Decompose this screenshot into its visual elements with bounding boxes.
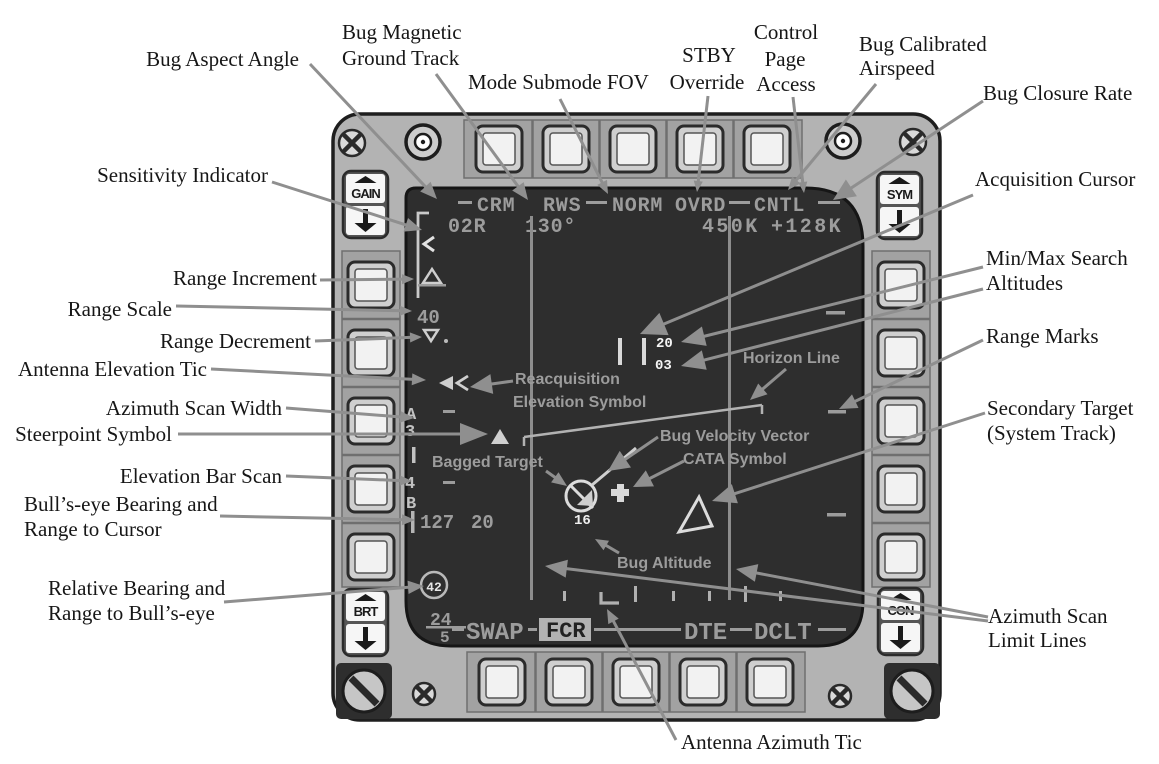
svg-text:Azimuth Scan Width: Azimuth Scan Width bbox=[106, 396, 283, 420]
svg-text:5: 5 bbox=[440, 629, 450, 647]
svg-text:STBY: STBY bbox=[682, 43, 736, 67]
svg-text:Range to Cursor: Range to Cursor bbox=[24, 517, 162, 541]
svg-text:127: 127 bbox=[420, 512, 454, 534]
svg-text:Range Decrement: Range Decrement bbox=[160, 329, 311, 353]
svg-text:Steerpoint Symbol: Steerpoint Symbol bbox=[15, 422, 172, 446]
svg-text:Access: Access bbox=[756, 72, 815, 96]
svg-text:Range to Bull’s-eye: Range to Bull’s-eye bbox=[48, 601, 215, 625]
svg-text:CATA Symbol: CATA Symbol bbox=[683, 451, 787, 468]
svg-text:OVRD: OVRD bbox=[675, 195, 726, 218]
svg-text:NORM: NORM bbox=[612, 195, 663, 218]
svg-text:GAIN: GAIN bbox=[351, 186, 380, 201]
svg-text:Reacquisition: Reacquisition bbox=[515, 371, 620, 388]
svg-text:Range Increment: Range Increment bbox=[173, 266, 317, 290]
svg-text:Control: Control bbox=[754, 20, 818, 44]
svg-text:02R: 02R bbox=[448, 216, 486, 239]
svg-text:4: 4 bbox=[405, 475, 415, 494]
svg-text:03: 03 bbox=[655, 358, 672, 374]
svg-text:Limit Lines: Limit Lines bbox=[988, 628, 1087, 652]
svg-text:DCLT: DCLT bbox=[754, 620, 812, 647]
svg-text:Bagged Target: Bagged Target bbox=[432, 454, 544, 471]
svg-text:SWAP: SWAP bbox=[466, 620, 524, 647]
svg-text:DTE: DTE bbox=[684, 620, 727, 647]
svg-text:Mode Submode FOV: Mode Submode FOV bbox=[468, 70, 649, 94]
svg-text:FCR: FCR bbox=[546, 619, 586, 644]
svg-text:Bug Altitude: Bug Altitude bbox=[617, 555, 712, 572]
svg-text:Range Scale: Range Scale bbox=[68, 297, 172, 321]
svg-text:Ground Track: Ground Track bbox=[342, 46, 460, 70]
svg-text:Bull’s-eye Bearing and: Bull’s-eye Bearing and bbox=[24, 492, 218, 516]
svg-text:Relative Bearing and: Relative Bearing and bbox=[48, 576, 226, 600]
svg-text:Altitudes: Altitudes bbox=[986, 271, 1063, 295]
svg-text:Sensitivity Indicator: Sensitivity Indicator bbox=[97, 163, 268, 187]
svg-text:Elevation Bar Scan: Elevation Bar Scan bbox=[120, 464, 283, 488]
svg-text:Bug Magnetic: Bug Magnetic bbox=[342, 20, 462, 44]
svg-text:Min/Max Search: Min/Max Search bbox=[986, 246, 1128, 270]
svg-text:Bug Velocity Vector: Bug Velocity Vector bbox=[660, 428, 809, 445]
svg-text:20: 20 bbox=[656, 336, 673, 352]
svg-text:CNTL: CNTL bbox=[754, 195, 805, 218]
svg-text:Antenna Azimuth Tic: Antenna Azimuth Tic bbox=[681, 730, 862, 754]
svg-text:RWS: RWS bbox=[543, 195, 581, 218]
svg-text:Airspeed: Airspeed bbox=[859, 56, 935, 80]
svg-text:CRM: CRM bbox=[477, 195, 515, 218]
svg-text:SYM: SYM bbox=[887, 187, 912, 202]
svg-text:40: 40 bbox=[417, 307, 440, 329]
svg-text:Override: Override bbox=[670, 70, 745, 94]
svg-text:Horizon Line: Horizon Line bbox=[743, 350, 840, 367]
svg-text:Azimuth Scan: Azimuth Scan bbox=[988, 604, 1108, 628]
svg-text:+128K: +128K bbox=[771, 216, 843, 239]
svg-text:42: 42 bbox=[426, 580, 442, 595]
svg-text:Bug Calibrated: Bug Calibrated bbox=[859, 32, 987, 56]
svg-text:Antenna Elevation Tic: Antenna Elevation Tic bbox=[18, 357, 207, 381]
svg-text:(System Track): (System Track) bbox=[987, 421, 1116, 445]
svg-text:Bug Closure Rate: Bug Closure Rate bbox=[983, 81, 1132, 105]
svg-text:Elevation Symbol: Elevation Symbol bbox=[513, 394, 646, 411]
svg-text:Acquisition Cursor: Acquisition Cursor bbox=[975, 167, 1135, 191]
svg-text:16: 16 bbox=[574, 513, 591, 529]
svg-text:20: 20 bbox=[471, 512, 494, 534]
svg-text:Page: Page bbox=[765, 47, 806, 71]
svg-text:BRT: BRT bbox=[354, 604, 379, 619]
svg-text:Range Marks: Range Marks bbox=[986, 324, 1099, 348]
svg-text:Bug Aspect Angle: Bug Aspect Angle bbox=[146, 47, 299, 71]
svg-text:Secondary Target: Secondary Target bbox=[987, 396, 1134, 420]
